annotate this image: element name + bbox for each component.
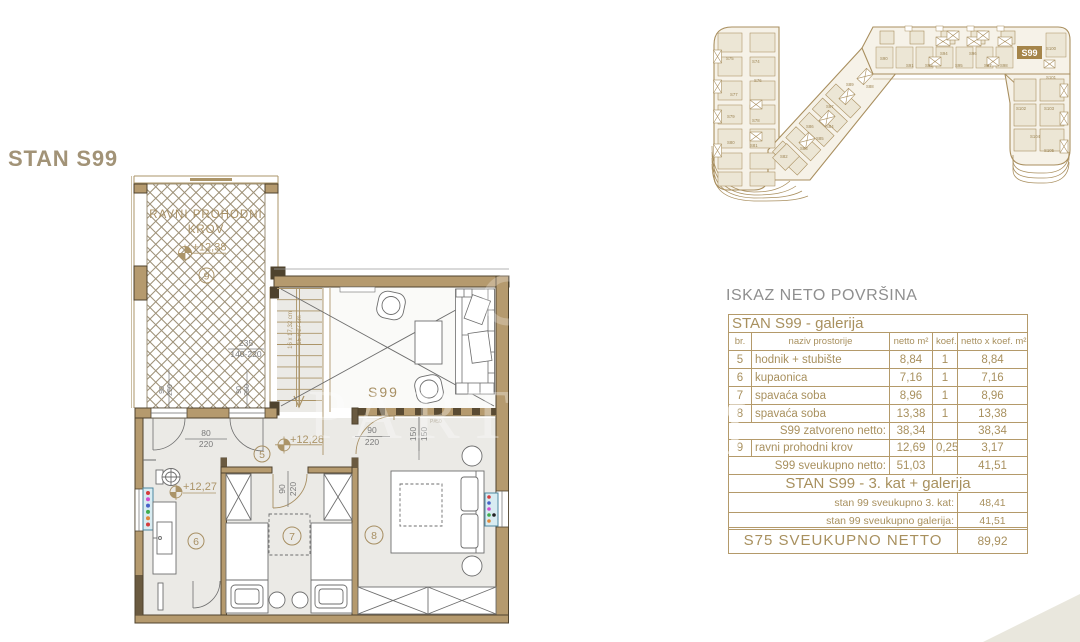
svg-text:6: 6: [193, 536, 199, 548]
svg-text:S83: S83: [800, 146, 808, 151]
svg-text:S102: S102: [1016, 106, 1027, 111]
svg-text:S101: S101: [1046, 75, 1057, 80]
svg-text:8: 8: [371, 530, 377, 542]
svg-text:S95: S95: [955, 63, 963, 68]
svg-text:S103: S103: [1044, 106, 1055, 111]
svg-text:PARTNER: PARTNER: [308, 377, 693, 454]
svg-text:16 x 17,32 cm: 16 x 17,32 cm: [288, 311, 294, 349]
svg-text:S78: S78: [752, 118, 760, 123]
svg-text:S88: S88: [866, 84, 874, 89]
svg-text:S99: S99: [1021, 48, 1037, 58]
svg-text:+12,27: +12,27: [183, 481, 217, 493]
svg-text:S90: S90: [880, 56, 888, 61]
svg-text:220: 220: [199, 439, 213, 449]
svg-text:S75: S75: [726, 56, 734, 61]
svg-text:S74: S74: [752, 59, 760, 64]
svg-text:5: 5: [259, 449, 265, 461]
svg-text:90: 90: [277, 484, 287, 494]
svg-text:250: 250: [167, 384, 174, 396]
svg-text:S76: S76: [754, 78, 762, 83]
svg-text:235: 235: [239, 338, 253, 348]
svg-text:80: 80: [201, 428, 211, 438]
svg-text:S84: S84: [826, 124, 834, 129]
svg-text:S79: S79: [727, 114, 735, 119]
svg-text:S98: S98: [1000, 63, 1008, 68]
svg-text:S97: S97: [984, 63, 992, 68]
svg-text:S81: S81: [750, 143, 758, 148]
svg-text:S80: S80: [727, 140, 735, 145]
svg-text:S104: S104: [1030, 134, 1041, 139]
svg-text:15 x 27 cm: 15 x 27 cm: [297, 315, 303, 344]
svg-text:140-220: 140-220: [230, 349, 261, 359]
svg-text:S82: S82: [780, 154, 788, 159]
svg-text:S92: S92: [925, 63, 933, 68]
svg-text:S86: S86: [806, 124, 814, 129]
svg-text:7: 7: [289, 531, 295, 543]
svg-text:250: 250: [244, 384, 251, 396]
svg-text:S96: S96: [969, 51, 977, 56]
svg-text:RAVNI PROHODNI: RAVNI PROHODNI: [149, 209, 262, 221]
svg-text:S87: S87: [826, 104, 834, 109]
svg-text:+12,38: +12,38: [193, 242, 227, 254]
svg-text:S105: S105: [1044, 148, 1055, 153]
svg-text:90: 90: [159, 386, 166, 394]
svg-text:S100: S100: [1046, 46, 1057, 51]
svg-text:S77: S77: [730, 92, 738, 97]
svg-text:S85: S85: [816, 136, 824, 141]
svg-text:90: 90: [236, 386, 243, 394]
svg-text:S94: S94: [940, 51, 948, 56]
svg-text:KROV: KROV: [188, 224, 225, 236]
svg-text:220: 220: [288, 482, 298, 496]
svg-text:9: 9: [204, 271, 210, 283]
svg-text:S89: S89: [846, 82, 854, 87]
svg-text:S91: S91: [906, 63, 914, 68]
